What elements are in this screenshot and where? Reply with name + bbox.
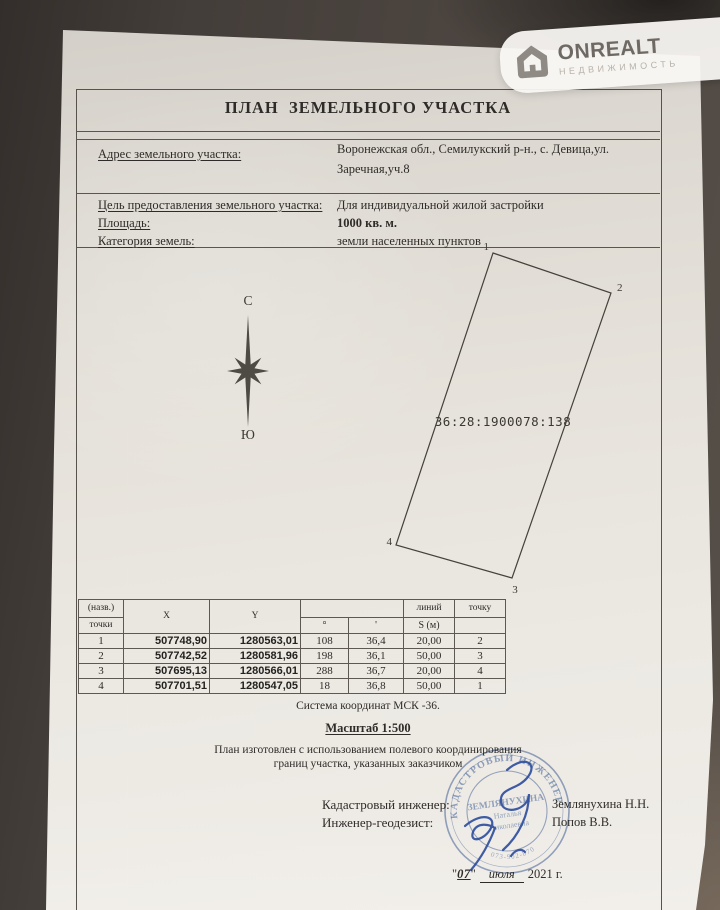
table-row: 3 507695,13 1280566,01 288 36,7 20,00 4 (79, 664, 506, 679)
section-divider (76, 193, 660, 194)
col-header-lines: линий (404, 600, 455, 618)
col-header-degrees: ° (301, 618, 349, 634)
plot-corner-label-3: 3 (512, 584, 518, 596)
cell-deg: 288 (301, 664, 349, 679)
col-header-s-m: S (м) (404, 618, 455, 634)
address-value-line2: Заречная,уч.8 (337, 162, 410, 177)
date-line: "07"июля2021 г. (452, 867, 563, 883)
signature-ink (447, 750, 567, 880)
cell-min: 36,7 (349, 664, 404, 679)
cadastral-engineer-label: Кадастровый инженер: (322, 797, 450, 813)
cadastral-number: 36:28:1900078:138 (435, 414, 571, 429)
col-header-y: Y (210, 600, 301, 634)
purpose-label: Цель предоставления земельного участка: (98, 198, 322, 213)
plot-corner-label-4: 4 (387, 536, 393, 548)
area-value: 1000 кв. м. (337, 216, 397, 231)
cell-to-point: 3 (455, 649, 506, 664)
coordinates-table: (назв.) X Y линий точку точки ° ' S (м) … (78, 599, 506, 694)
address-label: Адрес земельного участка: (98, 147, 241, 162)
cell-point: 4 (79, 679, 124, 694)
category-label: Категория земель: (98, 234, 195, 249)
col-header-angle (301, 600, 404, 618)
table-row: 1 507748,90 1280563,01 108 36,4 20,00 2 (79, 634, 506, 649)
cell-x: 507701,51 (124, 679, 210, 694)
date-year: 2021 г. (528, 867, 563, 881)
cell-s: 20,00 (404, 634, 455, 649)
cell-x: 507695,13 (124, 664, 210, 679)
cell-s: 50,00 (404, 679, 455, 694)
cell-deg: 198 (301, 649, 349, 664)
plot-corner-label-1: 1 (484, 241, 490, 253)
compass-rose: С Ю (203, 289, 293, 441)
cell-y: 1280547,05 (210, 679, 301, 694)
house-icon (515, 43, 549, 79)
section-divider (76, 131, 660, 132)
cell-x: 507748,90 (124, 634, 210, 649)
col-header-to-point: точку (455, 600, 506, 618)
area-label: Площадь: (98, 216, 150, 231)
cell-to-point: 2 (455, 634, 506, 649)
cell-to-point: 4 (455, 664, 506, 679)
coordinate-system-note: Система координат МСК -36. (76, 700, 660, 712)
cell-y: 1280581,96 (210, 649, 301, 664)
date-month: июля (480, 867, 524, 883)
cell-x: 507742,52 (124, 649, 210, 664)
address-value-line1: Воронежская обл., Семилукский р-н., с. Д… (337, 142, 609, 157)
cell-y: 1280563,01 (210, 634, 301, 649)
compass-south-label: Ю (241, 427, 255, 441)
cell-min: 36,1 (349, 649, 404, 664)
cell-s: 50,00 (404, 649, 455, 664)
geodesist-label: Инженер-геодезист: (322, 815, 433, 831)
cell-point: 1 (79, 634, 124, 649)
cell-min: 36,4 (349, 634, 404, 649)
cell-y: 1280566,01 (210, 664, 301, 679)
scale-note: Масштаб 1:500 (76, 721, 660, 736)
document-paper: ПЛАН ЗЕМЕЛЬНОГО УЧАСТКА Адрес земельного… (0, 0, 720, 910)
plot-corner-label-2: 2 (617, 282, 623, 294)
date-day: 07 (457, 867, 471, 881)
compass-star-icon (227, 315, 269, 427)
col-header-empty (455, 618, 506, 634)
plot-drawing: 1 2 3 4 36:28:1900078:138 (370, 238, 630, 600)
col-header-x: X (124, 600, 210, 634)
cell-s: 20,00 (404, 664, 455, 679)
page-title: ПЛАН ЗЕМЕЛЬНОГО УЧАСТКА (76, 98, 660, 118)
cell-deg: 18 (301, 679, 349, 694)
compass-north-label: С (243, 293, 252, 308)
table-row: 2 507742,52 1280581,96 198 36,1 50,00 3 (79, 649, 506, 664)
col-header-point-name: (назв.) (79, 600, 124, 618)
cell-point: 3 (79, 664, 124, 679)
col-header-point-name2: точки (79, 618, 124, 634)
col-header-minutes: ' (349, 618, 404, 634)
cell-to-point: 1 (455, 679, 506, 694)
purpose-value: Для индивидуальной жилой застройки (337, 198, 544, 213)
photo-background: ПЛАН ЗЕМЕЛЬНОГО УЧАСТКА Адрес земельного… (0, 0, 720, 910)
table-row: 4 507701,51 1280547,05 18 36,8 50,00 1 (79, 679, 506, 694)
cell-min: 36,8 (349, 679, 404, 694)
cell-deg: 108 (301, 634, 349, 649)
cell-point: 2 (79, 649, 124, 664)
date-close-quote: " (471, 867, 476, 881)
section-divider (76, 139, 660, 140)
